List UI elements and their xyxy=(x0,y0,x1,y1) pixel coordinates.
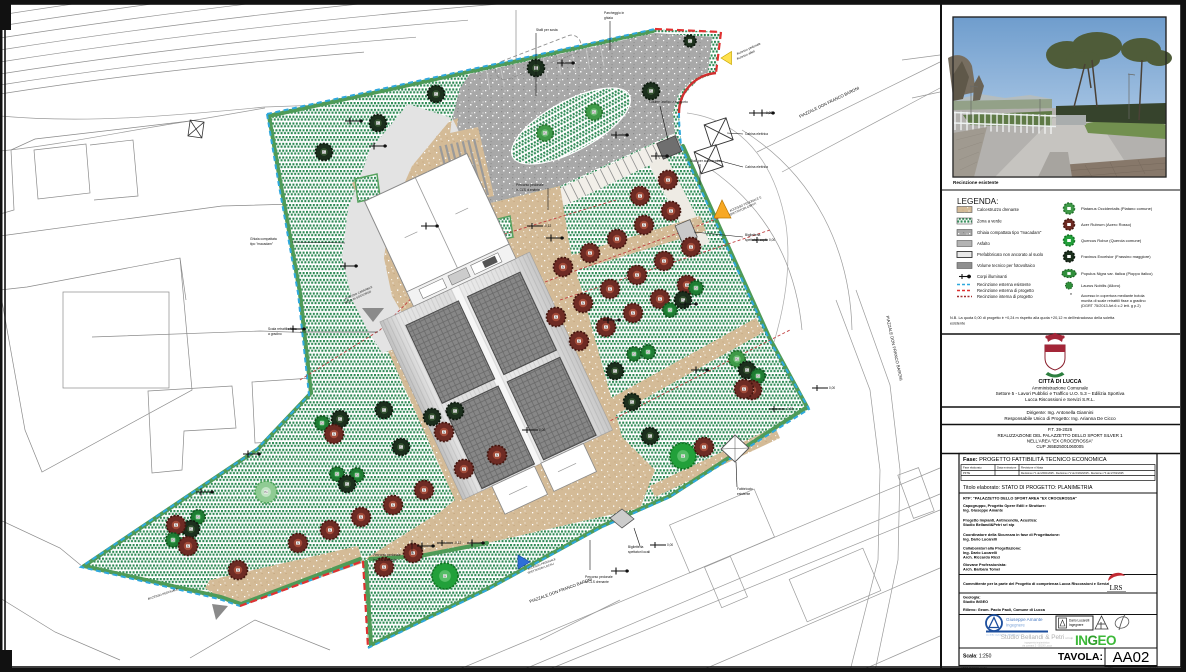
svg-text:Pd: Pd xyxy=(171,538,175,542)
svg-text:Prefabbricato non ancorato al: Prefabbricato non ancorato al suolo xyxy=(977,252,1044,257)
svg-text:Data emissione: Data emissione xyxy=(997,466,1017,470)
svg-text:ghiaia: ghiaia xyxy=(604,16,613,20)
svg-text:Pn: Pn xyxy=(322,150,326,154)
svg-text:Ar: Ar xyxy=(187,544,190,548)
svg-text:Ar: Ar xyxy=(237,568,240,572)
svg-text:in CLS drenante: in CLS drenante xyxy=(516,188,540,192)
svg-text:Gr: Gr xyxy=(682,454,685,458)
svg-text:Ar: Ar xyxy=(609,287,612,291)
svg-text:Asfalto: Asfalto xyxy=(977,241,990,246)
svg-text:spettatori ospiti: spettatori ospiti xyxy=(745,238,767,242)
svg-text:Calcestruzzo drenante: Calcestruzzo drenante xyxy=(977,207,1020,212)
svg-text:Dario Lucarelli: Dario Lucarelli xyxy=(1069,619,1090,623)
svg-text:Pd: Pd xyxy=(694,286,698,290)
svg-text:Ar: Ar xyxy=(463,467,466,471)
svg-text:Giovane Professionista:: Giovane Professionista: xyxy=(963,563,1006,567)
svg-text:Pn: Pn xyxy=(453,409,457,413)
svg-text:Giuseppe Amante: Giuseppe Amante xyxy=(1006,617,1043,622)
svg-text:Ar: Ar xyxy=(589,251,592,255)
svg-text:Pn: Pn xyxy=(376,121,380,125)
svg-text:Studio Bellandi & Petri srl st: Studio Bellandi & Petri srl stp xyxy=(1001,634,1074,641)
svg-text:Ar: Ar xyxy=(743,387,746,391)
svg-text:Percorso pedonale: Percorso pedonale xyxy=(516,183,544,187)
svg-text:Pn: Pn xyxy=(345,482,349,486)
svg-text:Pd: Pd xyxy=(668,308,672,312)
svg-text:Pd: Pd xyxy=(196,515,200,519)
svg-text:Parcheggio in: Parcheggio in xyxy=(604,11,624,15)
svg-text:Pd: Pd xyxy=(756,374,760,378)
svg-text:Ingegnere: Ingegnere xyxy=(1006,623,1026,628)
svg-text:Laurus Nobilis (Alloro): Laurus Nobilis (Alloro) xyxy=(1081,283,1121,288)
svg-text:RTP: "PALAZZETTO DELLO SPORT A: RTP: "PALAZZETTO DELLO SPORT AREA "EX CR… xyxy=(963,497,1077,501)
svg-text:Ar: Ar xyxy=(423,488,426,492)
svg-text:Studio INGEO: Studio INGEO xyxy=(963,600,988,604)
svg-text:0,00: 0,00 xyxy=(667,543,673,547)
svg-text:Ar: Ar xyxy=(578,339,581,343)
svg-text:Collaboratori alla Progettazio: Collaboratori alla Progettazione: xyxy=(963,547,1021,551)
svg-text:Pd: Pd xyxy=(335,472,339,476)
svg-text:0,00: 0,00 xyxy=(829,386,835,390)
svg-text:LEGENDA:: LEGENDA: xyxy=(957,197,998,206)
svg-text:Gr: Gr xyxy=(444,574,447,578)
svg-text:Ar: Ar xyxy=(643,223,646,227)
svg-text:in CLS drenante: in CLS drenante xyxy=(373,558,397,562)
svg-text:Pd: Pd xyxy=(646,350,650,354)
svg-text:Scala: 1:250: Scala: 1:250 xyxy=(963,654,992,660)
svg-text:Pd: Pd xyxy=(355,473,359,477)
svg-text:Fase elaborato: Fase elaborato xyxy=(963,466,982,470)
svg-text:-0,12: -0,12 xyxy=(454,541,461,545)
svg-text:Ingegnere: Ingegnere xyxy=(1069,623,1084,627)
svg-text:REALIZZAZIONE DEL PALAZZETTO D: REALIZZAZIONE DEL PALAZZETTO DELLO SPORT… xyxy=(997,433,1123,438)
svg-text:Volume tecnico e supporto: Volume tecnico e supporto xyxy=(649,100,688,104)
svg-text:Pn: Pn xyxy=(189,527,193,531)
svg-text:Ar: Ar xyxy=(632,311,635,315)
svg-text:Ar: Ar xyxy=(360,515,363,519)
svg-text:tipo "macadam": tipo "macadam" xyxy=(250,242,274,246)
svg-text:INGEO: INGEO xyxy=(1075,633,1116,648)
svg-text:Pn: Pn xyxy=(399,445,403,449)
svg-text:N.B. La quota 0,00 di proget: N.B. La quota 0,00 di progetto è +0,24 m… xyxy=(950,316,1115,320)
svg-text:Percorso pedonale: Percorso pedonale xyxy=(373,553,401,557)
svg-text:Ar: Ar xyxy=(333,432,336,436)
svg-text:Scala retrattile fissa: Scala retrattile fissa xyxy=(268,327,297,331)
svg-text:Ar: Ar xyxy=(659,297,662,301)
svg-text:Arch. Barbara Tomei: Arch. Barbara Tomei xyxy=(963,568,1000,572)
svg-text:Recinzione esterna di progetto: Recinzione esterna di progetto xyxy=(977,288,1034,293)
svg-text:Pn: Pn xyxy=(430,415,434,419)
svg-text:Ar: Ar xyxy=(690,245,693,249)
svg-text:0,00: 0,00 xyxy=(769,238,775,242)
svg-text:Ing. Dario Lucarelli: Ing. Dario Lucarelli xyxy=(963,551,997,555)
svg-text:Fabbricato: Fabbricato xyxy=(737,487,753,491)
svg-text:Pn: Pn xyxy=(434,92,438,96)
svg-text:Ghiaia compattata: Ghiaia compattata xyxy=(250,237,277,241)
svg-text:Pg: Pg xyxy=(735,357,739,361)
svg-text:Biglietteria: Biglietteria xyxy=(745,233,761,237)
svg-text:Geologia:: Geologia: xyxy=(963,596,981,600)
svg-text:Ar: Ar xyxy=(297,541,300,545)
svg-text:Ar: Ar xyxy=(555,315,558,319)
svg-text:Fase: PROGETTO FATTIBILITÀ TEC: Fase: PROGETTO FATTIBILITÀ TECNICO ECONO… xyxy=(963,456,1107,463)
svg-text:Pd: Pd xyxy=(320,421,324,425)
svg-text:Progetto Impianti, Antincendio: Progetto Impianti, Antincendio, Acustica… xyxy=(963,519,1037,523)
svg-text:-0,12: -0,12 xyxy=(544,224,551,228)
svg-text:Ar: Ar xyxy=(667,178,670,182)
svg-text:Revisione n°1 del 26/01/2025 -: Revisione n°1 del 26/01/2025 - Revisione… xyxy=(1021,472,1124,475)
svg-text:esistente: esistente xyxy=(737,492,750,496)
svg-text:Dirigente: Ing. Antonella Gian: Dirigente: Ing. Antonella Giannini xyxy=(1027,410,1094,415)
svg-text:Titolo elaborato: STATO DI PRO: Titolo elaborato: STATO DI PROGETTO: PLA… xyxy=(963,485,1093,491)
svg-text:CITTÀ DI LUCCA: CITTÀ DI LUCCA xyxy=(1038,378,1081,385)
svg-text:Ar: Ar xyxy=(663,259,666,263)
svg-text:Pn: Pn xyxy=(648,434,652,438)
svg-text:CUP J65B25001060005: CUP J65B25001060005 xyxy=(1036,444,1084,449)
svg-text:Ar: Ar xyxy=(392,503,395,507)
svg-text:Percorso pedonale: Percorso pedonale xyxy=(585,575,613,579)
svg-text:TAVOLA:: TAVOLA: xyxy=(1058,651,1103,663)
svg-text:Pn: Pn xyxy=(649,89,653,93)
svg-text:Ar: Ar xyxy=(383,565,386,569)
svg-text:Amministrazione Comunale: Amministrazione Comunale xyxy=(1032,386,1089,391)
svg-text:LRS: LRS xyxy=(1110,584,1123,592)
svg-text:Stalli per sosta: Stalli per sosta xyxy=(536,28,558,32)
svg-text:Ghiaia compattata tipo "macada: Ghiaia compattata tipo "macadam" xyxy=(977,230,1042,235)
svg-text:Ing. Dario Lucarelli: Ing. Dario Lucarelli xyxy=(963,538,997,542)
svg-text:Ar: Ar xyxy=(703,445,706,449)
svg-text:Pn: Pn xyxy=(630,400,634,404)
svg-text:Ar: Ar xyxy=(639,194,642,198)
svg-text:Pn: Pn xyxy=(338,417,342,421)
svg-text:Committente per la parte del P: Committente per la parte del Progetto di… xyxy=(963,582,1109,586)
svg-text:-0,08: -0,08 xyxy=(786,407,793,411)
svg-text:Ar: Ar xyxy=(636,273,639,277)
svg-text:Pg: Pg xyxy=(543,131,547,135)
svg-text:a gradino: a gradino xyxy=(268,332,282,336)
svg-text:Biglietteria: Biglietteria xyxy=(628,545,644,549)
svg-text:Cabina elettrica: Cabina elettrica xyxy=(745,132,768,136)
svg-text:Pg: Pg xyxy=(592,110,596,114)
svg-text:Pn: Pn xyxy=(745,368,749,372)
svg-text:Acer Rubrum (Acero Rosso): Acer Rubrum (Acero Rosso) xyxy=(1081,222,1132,227)
svg-text:Quercus Robur (Quercia comune): Quercus Robur (Quercia comune) xyxy=(1081,238,1142,243)
svg-text:*: * xyxy=(1070,293,1072,299)
svg-text:in CLS drenante: in CLS drenante xyxy=(585,580,609,584)
svg-text:Pn: Pn xyxy=(688,39,692,43)
svg-text:Ar: Ar xyxy=(605,325,608,329)
svg-text:Capogruppo, Progetto Opere Edi: Capogruppo, Progetto Opere Edili e Strut… xyxy=(963,504,1046,508)
svg-text:0,00: 0,00 xyxy=(766,111,772,115)
svg-text:Po: Po xyxy=(264,490,268,494)
svg-text:AA02: AA02 xyxy=(1113,649,1150,666)
svg-text:NELL'AREA "EX CROCEROSSA": NELL'AREA "EX CROCEROSSA" xyxy=(1027,439,1094,444)
svg-text:via consani 2 - 55100 Lucca: via consani 2 - 55100 Lucca xyxy=(1022,645,1052,648)
svg-text:Stalli per autocaravan: Stalli per autocaravan xyxy=(690,159,722,163)
svg-text:Pn: Pn xyxy=(382,408,386,412)
svg-text:Studio Bellandi&Petri srl stp: Studio Bellandi&Petri srl stp xyxy=(963,523,1015,527)
svg-text:Recinzione esterna esistente: Recinzione esterna esistente xyxy=(977,282,1031,287)
svg-text:Populus Nigra var. italica (Pi: Populus Nigra var. italica (Pioppo itali… xyxy=(1081,271,1153,276)
svg-text:Revisione n°/data: Revisione n°/data xyxy=(1021,466,1043,470)
svg-text:Ar: Ar xyxy=(443,430,446,434)
svg-text:Ar: Ar xyxy=(496,453,499,457)
svg-text:PFTE: PFTE xyxy=(963,471,970,475)
svg-text:Lucca Riscossioni e Servizi S.: Lucca Riscossioni e Servizi S.R.L. xyxy=(1025,397,1095,402)
svg-text:Recinzione esistente: Recinzione esistente xyxy=(953,180,999,185)
svg-text:esistente: esistente xyxy=(950,322,965,326)
svg-text:P.T. 39-2026: P.T. 39-2026 xyxy=(1048,427,1073,432)
svg-text:Accesso in copertura mediante: Accesso in copertura mediante botola xyxy=(1081,294,1145,298)
svg-text:Volume tecnico per fotovoltaic: Volume tecnico per fotovoltaico xyxy=(977,263,1036,268)
svg-text:Ar: Ar xyxy=(175,523,178,527)
svg-text:Ing. Giuseppe Amante: Ing. Giuseppe Amante xyxy=(963,509,1003,513)
svg-text:munita di scale retrattili fis: munita di scale retrattili fisse a gradi… xyxy=(1081,299,1146,303)
svg-text:Ar: Ar xyxy=(686,283,689,287)
svg-text:Platanus Occidentalis (Platano: Platanus Occidentalis (Platano comune) xyxy=(1081,206,1153,211)
svg-text:Responsabile Unico di Progetto: Responsabile Unico di Progetto: Ing. Ari… xyxy=(1004,416,1116,421)
svg-text:Ar: Ar xyxy=(562,265,565,269)
svg-text:Corpi illuminanti: Corpi illuminanti xyxy=(977,274,1007,279)
svg-text:Coordinatore della Sicurezza i: Coordinatore della Sicurezza in fase di … xyxy=(963,533,1060,537)
svg-text:Pn: Pn xyxy=(613,369,617,373)
svg-text:Zona a verde: Zona a verde xyxy=(977,219,1002,224)
svg-text:Pd: Pd xyxy=(632,352,636,356)
svg-text:(DGRT 75/2013 Art.6 c.2 lett.: (DGRT 75/2013 Art.6 c.2 lett. g p.2) xyxy=(1081,304,1141,308)
svg-text:Cabina elettrica: Cabina elettrica xyxy=(745,165,768,169)
svg-text:Rilievo: Geom. Paolo Paoli, Co: Rilievo: Geom. Paolo Paoli, Comune di Lu… xyxy=(963,608,1046,612)
svg-text:0,00: 0,00 xyxy=(539,428,545,432)
svg-text:Ar: Ar xyxy=(582,301,585,305)
svg-text:Settore 5 - Lavori Pubblici e: Settore 5 - Lavori Pubblici e Traffico U… xyxy=(996,391,1125,396)
svg-text:Recinzione interna di progetto: Recinzione interna di progetto xyxy=(977,294,1033,299)
svg-text:Fraxinus Excelsior (Frassino m: Fraxinus Excelsior (Frassino maggiore) xyxy=(1081,254,1151,259)
svg-text:Arch. Riccardo Ricci: Arch. Riccardo Ricci xyxy=(963,556,1000,560)
svg-text:Ar: Ar xyxy=(670,209,673,213)
svg-text:Ar: Ar xyxy=(616,237,619,241)
svg-text:Ar: Ar xyxy=(329,528,332,532)
svg-text:spettatori locali: spettatori locali xyxy=(628,550,650,554)
